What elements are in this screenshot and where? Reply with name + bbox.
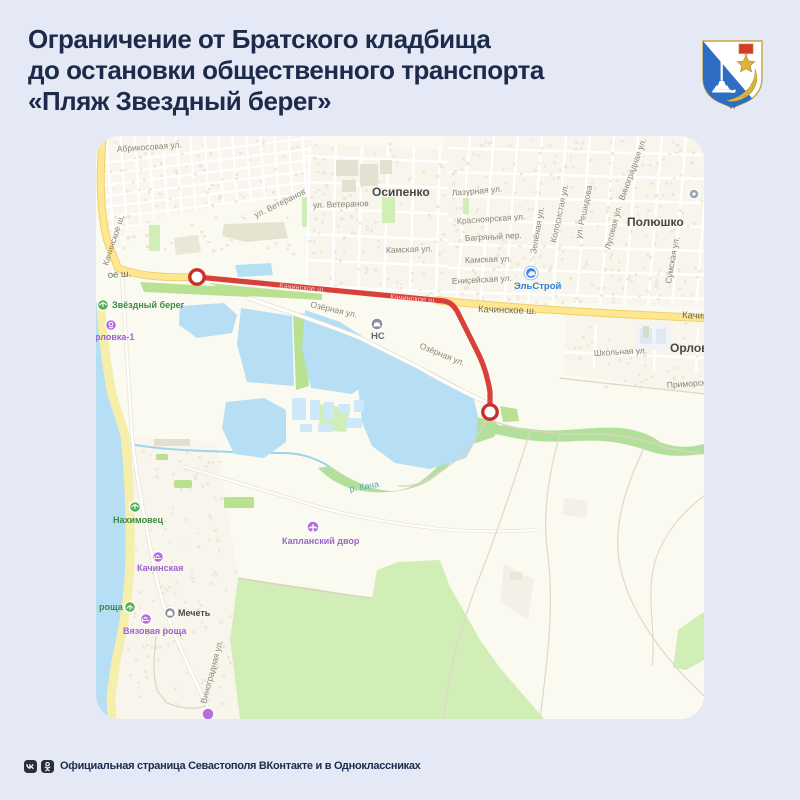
svg-text:Качин: Качин <box>682 310 704 322</box>
svg-text:Камская ул.: Камская ул. <box>386 243 433 255</box>
svg-text:Качинская: Качинская <box>137 563 183 573</box>
svg-text:роща: роща <box>99 602 124 612</box>
svg-text:ое ш.: ое ш. <box>107 268 131 281</box>
svg-text:Капланский двор: Капланский двор <box>282 536 360 546</box>
svg-text:Нахимовец: Нахимовец <box>113 515 163 525</box>
svg-text:ЭльСтрой: ЭльСтрой <box>514 281 562 292</box>
svg-text:Камская ул.: Камская ул. <box>465 253 512 265</box>
svg-text:Орлов: Орлов <box>670 341 704 355</box>
svg-text:Осипенко: Осипенко <box>372 185 430 199</box>
svg-text:Звёздный берег: Звёздный берег <box>112 300 185 310</box>
svg-text:Качинское ш.: Качинское ш. <box>478 304 537 317</box>
svg-text:ул. Ветеранов: ул. Ветеранов <box>313 198 370 210</box>
svg-text:Мечеть: Мечеть <box>178 608 211 618</box>
svg-text:Вязовая роща: Вязовая роща <box>123 626 187 636</box>
svg-text:Полюшко: Полюшко <box>627 215 684 229</box>
svg-text:Орловка-1: Орловка-1 <box>96 332 134 342</box>
svg-text:НС: НС <box>371 331 385 342</box>
